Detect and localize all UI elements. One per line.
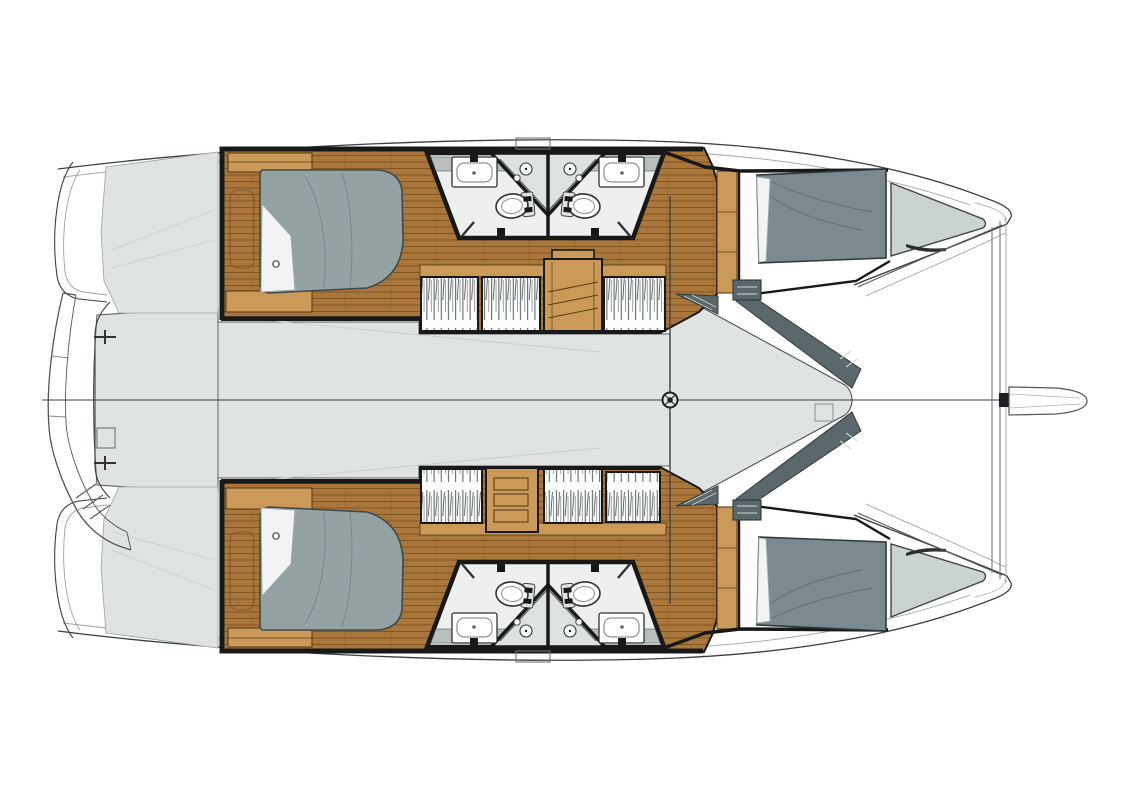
port-companionway-steps bbox=[544, 259, 602, 331]
mast-step-center bbox=[667, 397, 673, 403]
forward-berth-mattress bbox=[757, 169, 886, 263]
sink-fwd-drain bbox=[620, 171, 624, 175]
port-hanging-locker-1 bbox=[421, 277, 478, 331]
toilet-aft-hinge bbox=[523, 196, 531, 202]
toilet-fwd-hinge2 bbox=[563, 207, 571, 213]
head-door-hinge-aft bbox=[497, 228, 505, 236]
bow-shelf bbox=[891, 183, 986, 256]
forward-cabin-inboard-wall bbox=[739, 261, 890, 296]
toilet-fwd-hinge bbox=[564, 196, 572, 202]
aft-cabin-shelf bbox=[228, 153, 312, 172]
bowsprit-pole bbox=[1009, 387, 1087, 415]
head-door-hinge-fwd bbox=[591, 228, 599, 236]
port-hanging-locker-3 bbox=[604, 277, 665, 331]
stbd-locker-top bbox=[420, 523, 666, 535]
side-deck-step bbox=[733, 280, 761, 300]
bowsprit bbox=[1009, 387, 1087, 415]
transom-outer-line bbox=[55, 162, 107, 302]
basin-fwd-faucet bbox=[576, 175, 582, 181]
port-hanging-locker-2 bbox=[482, 277, 540, 331]
sink-aft-drain bbox=[472, 171, 476, 175]
floorplan-canvas bbox=[0, 0, 1131, 800]
sink-aft-tap bbox=[470, 154, 478, 162]
aft-cabin-locker bbox=[226, 291, 312, 312]
sink-aft-unit bbox=[452, 154, 497, 187]
berth-button bbox=[273, 261, 279, 267]
transom-platform bbox=[101, 152, 218, 313]
catamaran-floorplan bbox=[0, 0, 1131, 800]
dinghy-hatch-lines bbox=[76, 484, 110, 519]
starboard-companionway-strip bbox=[420, 468, 666, 535]
toilet-aft-hinge2 bbox=[524, 207, 532, 213]
sink-fwd-unit bbox=[599, 154, 644, 187]
basin-fwd-drain bbox=[569, 168, 571, 170]
transom-inner-line bbox=[64, 170, 107, 295]
stbd-hanging-locker-3 bbox=[606, 472, 660, 522]
stbd-hanging-locker-2 bbox=[544, 469, 602, 523]
basin-aft-faucet bbox=[514, 175, 520, 181]
dinghy-bow-tip bbox=[63, 293, 76, 295]
stbd-hanging-locker-1 bbox=[421, 469, 482, 523]
heads-compartment bbox=[427, 153, 664, 238]
sink-fwd-tap bbox=[618, 154, 626, 162]
mast-step bbox=[663, 393, 678, 408]
forward-cabin-locker-column bbox=[717, 171, 737, 293]
basin-aft-drain bbox=[525, 168, 527, 170]
